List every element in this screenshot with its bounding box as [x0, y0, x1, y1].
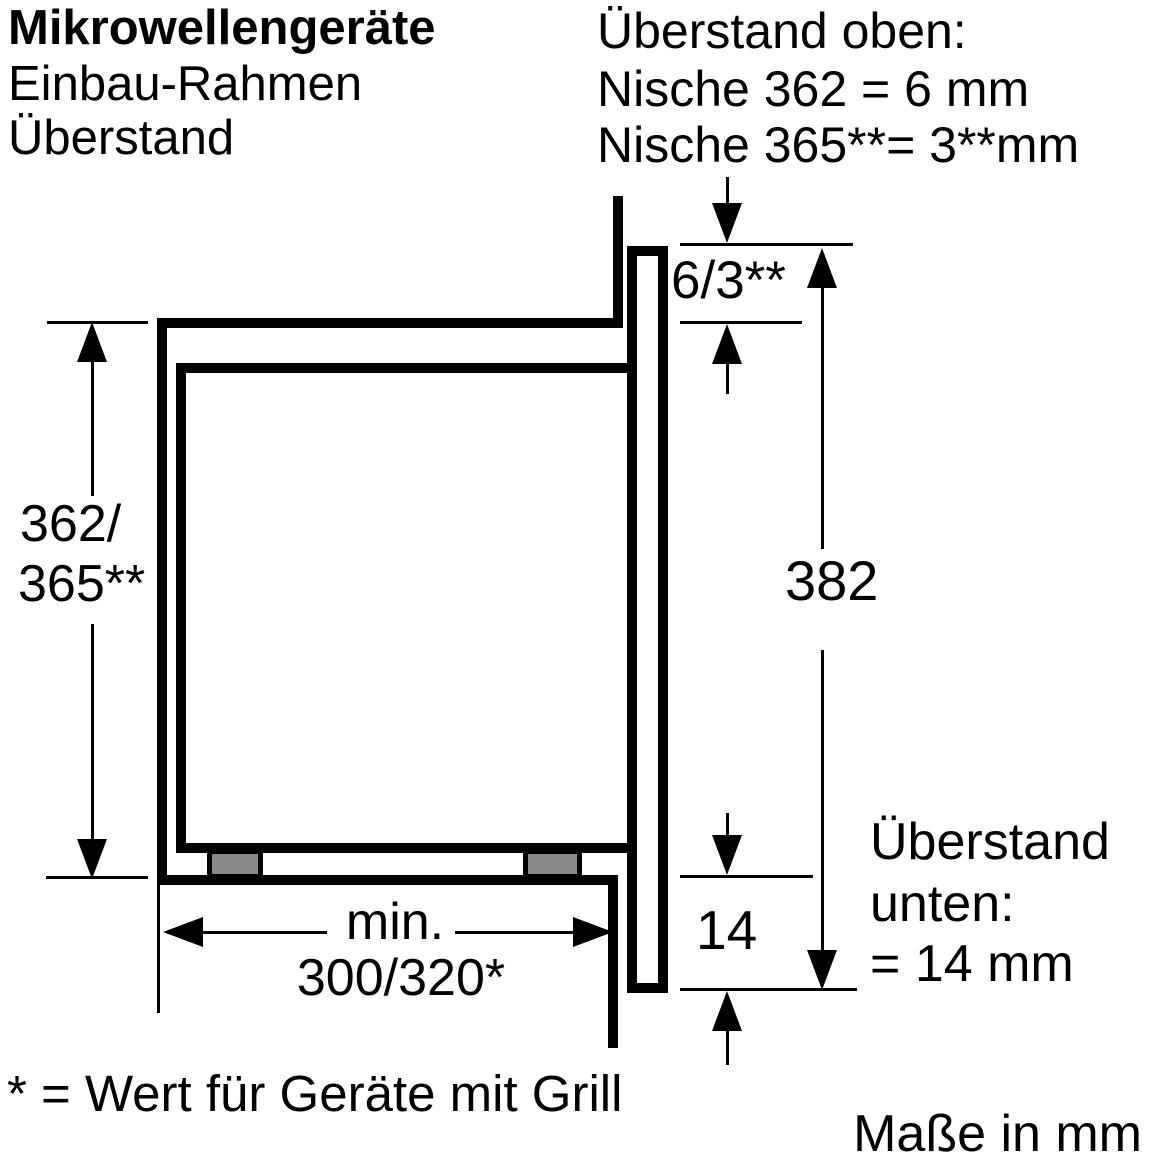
dim-line-shelf-level	[680, 875, 813, 878]
dim-line-frame-height-lower	[821, 650, 824, 953]
diagram-title-line2: Einbau-Rahmen	[8, 58, 362, 111]
cabinet-front-edge	[608, 875, 618, 1048]
diagram-title-line3: Überstand	[8, 112, 234, 165]
dim-line-frame-height-upper	[821, 284, 824, 549]
arrowhead-niche-bottom	[77, 839, 107, 879]
dim-line-niche-upper	[91, 356, 94, 496]
arrowhead-frame-height-top	[807, 248, 837, 288]
frame-outline	[627, 246, 668, 993]
note-overhang-bottom-line2: unten:	[870, 876, 1015, 932]
footnote-grill: * = Wert für Geräte mit Grill	[7, 1066, 622, 1121]
note-overhang-top-line3: Nische 365**= 3**mm	[597, 118, 1079, 172]
arrowhead-overhang-bottom-down	[712, 835, 742, 875]
arrowhead-overhang-top-down	[712, 203, 742, 243]
label-niche-height-line2: 365**	[18, 556, 145, 612]
arrow-tail-overhang-bottom-up	[726, 1027, 729, 1065]
note-overhang-top-line2: Nische 362 = 6 mm	[597, 62, 1029, 116]
diagram-title-line1: Mikrowellengeräte	[8, 2, 436, 55]
note-overhang-bottom-line1: Überstand	[870, 814, 1110, 870]
ext-line-width-left	[157, 885, 160, 1013]
device-left-wall	[176, 363, 186, 853]
label-width-value: 300/320*	[285, 950, 517, 1006]
label-overhang-bottom: 14	[696, 901, 757, 960]
device-foot-left	[207, 849, 263, 879]
dim-line-frame-top	[680, 243, 853, 246]
note-overhang-bottom-line3: = 14 mm	[870, 936, 1074, 992]
cabinet-left-wall	[157, 318, 167, 885]
device-top-wall	[176, 363, 627, 373]
label-frame-height: 382	[785, 551, 878, 611]
device-foot-right	[523, 849, 582, 879]
label-overhang-top: 6/3**	[671, 252, 786, 309]
dim-line-width-left-seg	[167, 931, 327, 934]
dim-line-frame-bottom	[680, 988, 857, 991]
note-overhang-top-line1: Überstand oben:	[597, 4, 967, 58]
arrowhead-overhang-top-up	[712, 324, 742, 364]
label-width-min: min.	[330, 894, 460, 950]
cabinet-back-edge	[613, 196, 623, 323]
dim-line-niche-lower	[91, 624, 94, 842]
arrow-tail-overhang-top-up	[726, 360, 729, 394]
arrowhead-frame-height-bottom	[807, 950, 837, 990]
arrowhead-width-right	[573, 917, 613, 947]
units-note: Maße in mm	[840, 1106, 1142, 1162]
arrowhead-overhang-bottom-up	[712, 991, 742, 1031]
installation-diagram: Mikrowellengeräte Einbau-Rahmen Überstan…	[0, 0, 1157, 1164]
cabinet-top-panel	[157, 318, 623, 328]
label-niche-height-line1: 362/	[20, 496, 121, 552]
